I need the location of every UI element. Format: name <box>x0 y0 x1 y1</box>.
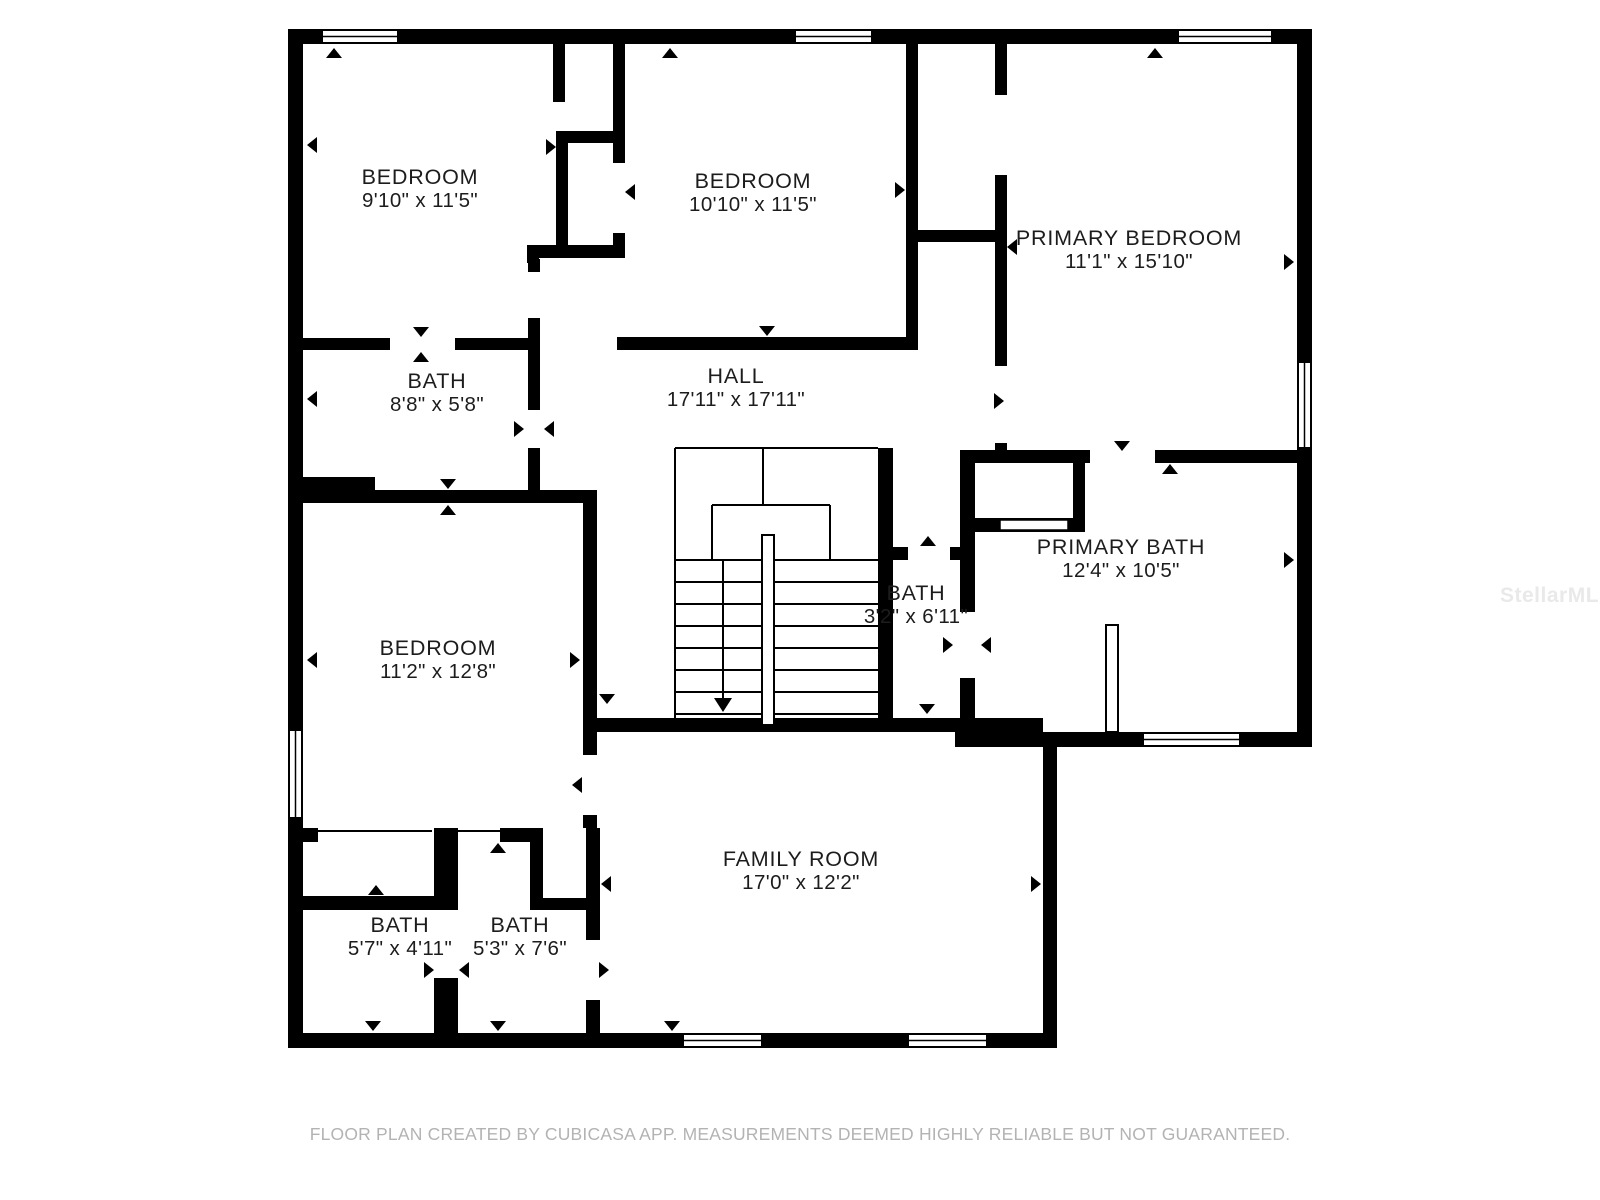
window <box>795 30 872 43</box>
room-name: BATH <box>746 582 1086 605</box>
room-dims: 11'1" x 15'10" <box>959 250 1299 273</box>
room-label-primary-bedroom: PRIMARY BEDROOM 11'1" x 15'10" <box>959 227 1299 273</box>
room-label-bedroom-top-left: BEDROOM 9'10" x 11'5" <box>250 166 590 212</box>
room-dims: 5'3" x 7'6" <box>350 937 690 960</box>
room-name: FAMILY ROOM <box>631 848 971 871</box>
room-dims: 10'10" x 11'5" <box>583 193 923 216</box>
stair-rail <box>762 535 774 725</box>
room-dims: 12'4" x 10'5" <box>951 559 1291 582</box>
room-label-bedroom-top-middle: BEDROOM 10'10" x 11'5" <box>583 170 923 216</box>
room-dims: 9'10" x 11'5" <box>250 189 590 212</box>
floor-plan-page: BEDROOM 9'10" x 11'5" BEDROOM 10'10" x 1… <box>0 0 1600 1200</box>
window <box>1178 30 1272 43</box>
room-dims: 11'2" x 12'8" <box>268 660 608 683</box>
sliding-closet-door <box>1000 520 1068 530</box>
room-label-hall: HALL 17'11" x 17'11" <box>566 365 906 411</box>
watermark-stellar-mls: StellarMLS <box>1500 584 1600 608</box>
room-dims: 3'2" x 6'11" <box>746 605 1086 628</box>
room-label-bath-middle: BATH 3'2" x 6'11" <box>746 582 1086 628</box>
window <box>1143 733 1240 746</box>
room-name: BEDROOM <box>268 637 608 660</box>
room-label-bath-bottom-right: BATH 5'3" x 7'6" <box>350 914 690 960</box>
room-name: BEDROOM <box>583 170 923 193</box>
window <box>683 1034 762 1047</box>
room-name: PRIMARY BATH <box>951 536 1291 559</box>
window <box>1298 362 1311 448</box>
window <box>289 730 302 818</box>
room-name: HALL <box>566 365 906 388</box>
stairs-down-arrow-icon <box>714 698 732 712</box>
shower-glass-partition <box>1106 625 1118 732</box>
window <box>908 1034 987 1047</box>
room-name: BATH <box>267 370 607 393</box>
room-label-bedroom-left: BEDROOM 11'2" x 12'8" <box>268 637 608 683</box>
room-label-bath-left: BATH 8'8" x 5'8" <box>267 370 607 416</box>
window <box>322 30 398 43</box>
footer-disclaimer: FLOOR PLAN CREATED BY CUBICASA APP. MEAS… <box>0 1124 1600 1145</box>
room-label-family-room: FAMILY ROOM 17'0" x 12'2" <box>631 848 971 894</box>
room-name: BATH <box>350 914 690 937</box>
room-label-primary-bath: PRIMARY BATH 12'4" x 10'5" <box>951 536 1291 582</box>
room-name: BEDROOM <box>250 166 590 189</box>
room-name: PRIMARY BEDROOM <box>959 227 1299 250</box>
room-dims: 8'8" x 5'8" <box>267 393 607 416</box>
room-dims: 17'0" x 12'2" <box>631 871 971 894</box>
room-dims: 17'11" x 17'11" <box>566 388 906 411</box>
